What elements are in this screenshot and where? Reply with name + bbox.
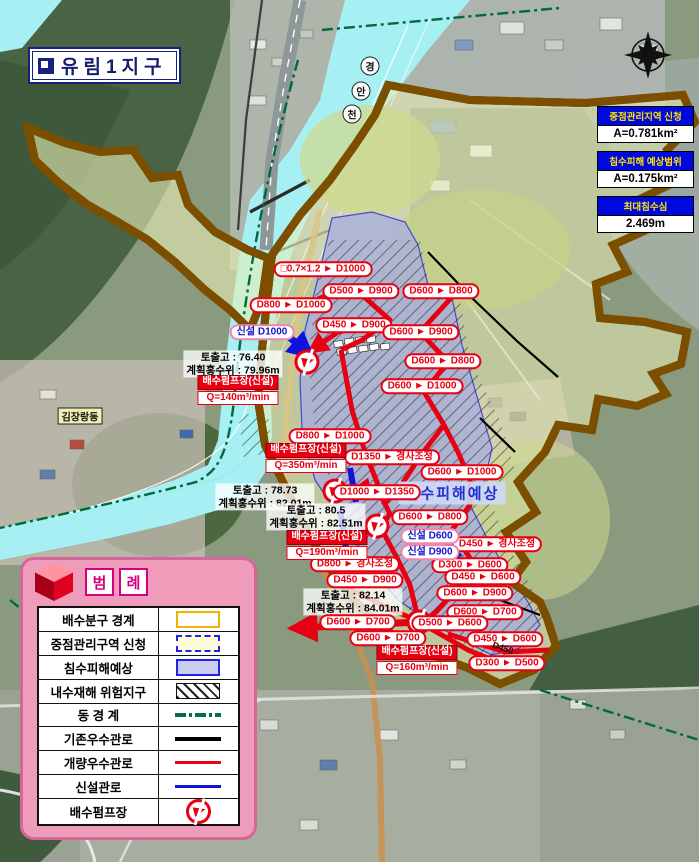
- black-swatch: [175, 737, 221, 741]
- district-swatch: [176, 635, 220, 652]
- pump-station-name: 배수펌프장(신설): [197, 375, 278, 390]
- legend-row-swatch: [159, 751, 238, 774]
- river-name-char: 천: [343, 105, 362, 124]
- legend-row: 배수분구 경계: [39, 608, 238, 631]
- pipe-label: D600 ► D800: [391, 509, 468, 525]
- river-name-char: 경: [361, 57, 380, 76]
- legend-row-label: 동 경 계: [39, 704, 159, 727]
- legend-row-label: 중점관리구역 신청: [39, 632, 159, 655]
- flood-level: 계획홍수위 : 82.51m: [269, 517, 362, 530]
- legend-row-label: 신설관로: [39, 775, 159, 798]
- dong-swatch: [175, 713, 221, 717]
- legend-title-char: 범: [85, 568, 114, 596]
- legend-panel: 범례 배수분구 경계 중점관리구역 신청 침수피해예상 내수재해 위험지구 동 …: [20, 557, 257, 840]
- pipe-label: □0.7×1.2 ► D1000: [274, 261, 373, 277]
- legend-row-swatch: [159, 608, 238, 631]
- legend-row-label: 기존우수관로: [39, 727, 159, 750]
- legend-row: 동 경 계: [39, 703, 238, 727]
- pipe-label: D500 ► D900: [322, 283, 399, 299]
- legend-row-swatch: [159, 632, 238, 655]
- legend-row-swatch: [159, 704, 238, 727]
- pipe-label: D300 ► D500: [468, 655, 545, 671]
- legend-row: 신설관로: [39, 774, 238, 798]
- legend-row-label: 개량우수관로: [39, 751, 159, 774]
- pump-station-name: 배수펌프장(신설): [286, 530, 367, 545]
- stat-header: 침수피해 예상범위: [598, 152, 693, 171]
- legend-row-swatch: [159, 680, 238, 703]
- legend-row: 중점관리구역 신청: [39, 631, 238, 655]
- district-name-label: 김장랑동: [58, 408, 103, 425]
- pipe-label: D600 ► D800: [404, 353, 481, 369]
- legend-row: 침수피해예상: [39, 655, 238, 679]
- hazard-swatch: [176, 683, 220, 699]
- pipe-label: D600 ► D700: [319, 614, 396, 630]
- pipe-label: D600 ► D1000: [421, 464, 504, 480]
- stat-box: 최대침수심 2.469m: [597, 196, 694, 233]
- pump-station-capacity: Q=350m³/min: [265, 459, 346, 474]
- cube-icon: [38, 58, 54, 74]
- boundary-swatch: [176, 611, 220, 628]
- pipe-label: D800 ► D1000: [250, 297, 333, 313]
- pump-station-name: 배수펌프장(신설): [265, 443, 346, 458]
- legend-row-label: 배수펌프장: [39, 799, 159, 824]
- discharge-level: 토출고 : 82.14: [306, 589, 399, 602]
- stat-box: 침수피해 예상범위 A=0.175km²: [597, 151, 694, 188]
- pump-station-name: 배수펌프장(신설): [376, 645, 457, 660]
- pump-station-capacity: Q=190m³/min: [286, 546, 367, 561]
- legend-title-char: 례: [119, 568, 148, 596]
- legend-row-swatch: [159, 799, 238, 824]
- pipe-label: D800 ► D1000: [289, 428, 372, 444]
- legend-row-swatch: [159, 656, 238, 679]
- legend-row-swatch: [159, 775, 238, 798]
- pipe-label: D450 ► 경사조정: [452, 536, 542, 552]
- discharge-level: 토출고 : 76.40: [186, 351, 279, 364]
- legend-row-label: 침수피해예상: [39, 656, 159, 679]
- map-canvas: 유림1지구 중점관리지역 신청 A=0.781km² 침수피해 예상범위 A=0…: [0, 0, 699, 862]
- legend-row: 배수펌프장: [39, 798, 238, 824]
- water-level-note: 토출고 : 82.14계획홍수위 : 84.01m: [303, 588, 402, 615]
- stat-value: A=0.781km²: [598, 126, 693, 142]
- map-title-box: 유림1지구: [28, 47, 181, 84]
- stat-header: 중점관리지역 신청: [598, 107, 693, 126]
- legend-row: 개량우수관로: [39, 750, 238, 774]
- legend-row-swatch: [159, 727, 238, 750]
- pump-station-capacity: Q=140m³/min: [197, 391, 278, 406]
- pump-station-capacity: Q=160m³/min: [376, 661, 457, 676]
- legend-row: 내수재해 위험지구: [39, 679, 238, 703]
- stat-boxes: 중점관리지역 신청 A=0.781km² 침수피해 예상범위 A=0.175km…: [597, 106, 694, 233]
- legend-row-label: 배수분구 경계: [39, 608, 159, 631]
- legend-header: 범례: [35, 563, 148, 601]
- legend-table: 배수분구 경계 중점관리구역 신청 침수피해예상 내수재해 위험지구 동 경 계…: [37, 606, 240, 826]
- pump-station-label: 배수펌프장(신설)Q=350m³/min: [265, 443, 346, 473]
- pipe-label: D1350 ► 경사조정: [344, 449, 440, 465]
- discharge-level: 토출고 : 78.73: [218, 484, 311, 497]
- legend-row-label: 내수재해 위험지구: [39, 680, 159, 703]
- pump-station-label: 배수펌프장(신설)Q=160m³/min: [376, 645, 457, 675]
- legend-row: 기존우수관로: [39, 726, 238, 750]
- flood-level: 계획홍수위 : 84.01m: [306, 602, 399, 615]
- flood-swatch: [176, 659, 220, 676]
- discharge-level: 토출고 : 80.5: [269, 504, 362, 517]
- pipe-label: D450 ► D900: [315, 317, 392, 333]
- pipe-label: D450 ► D900: [326, 572, 403, 588]
- pipe-label: D1000 ► D1350: [333, 484, 421, 500]
- red-swatch: [175, 761, 221, 765]
- pump-icon: [183, 796, 214, 827]
- water-level-note: 토출고 : 80.5계획홍수위 : 82.51m: [266, 503, 365, 530]
- pipe-label: 신설 D1000: [230, 324, 295, 340]
- stat-value: 2.469m: [598, 216, 693, 232]
- pipe-label: D600 ► D700: [349, 630, 426, 646]
- pipe-label: D600 ► D800: [402, 283, 479, 299]
- stat-header: 최대침수심: [598, 197, 693, 216]
- pipe-label: D600 ► D900: [382, 324, 459, 340]
- pump-station-label: 배수펌프장(신설)Q=140m³/min: [197, 375, 278, 405]
- pipe-label: D500 ► D600: [411, 615, 488, 631]
- stat-value: A=0.175km²: [598, 171, 693, 187]
- legend-title: 범례: [85, 568, 148, 596]
- pipe-label: 신설 D600: [400, 528, 459, 544]
- pipe-label: D450 ► D600: [444, 569, 521, 585]
- page-title: 유림1지구: [61, 52, 167, 79]
- legend-cube-icon: [35, 563, 73, 601]
- blue-swatch: [175, 785, 221, 789]
- pipe-label: D600 ► D900: [436, 585, 513, 601]
- river-name-char: 안: [352, 82, 371, 101]
- pipe-label: D600 ► D1000: [381, 378, 464, 394]
- stat-box: 중점관리지역 신청 A=0.781km²: [597, 106, 694, 143]
- water-level-note: 토출고 : 76.40계획홍수위 : 79.96m: [183, 350, 282, 377]
- pump-station-label: 배수펌프장(신설)Q=190m³/min: [286, 530, 367, 560]
- pipe-label: 신설 D900: [400, 544, 459, 560]
